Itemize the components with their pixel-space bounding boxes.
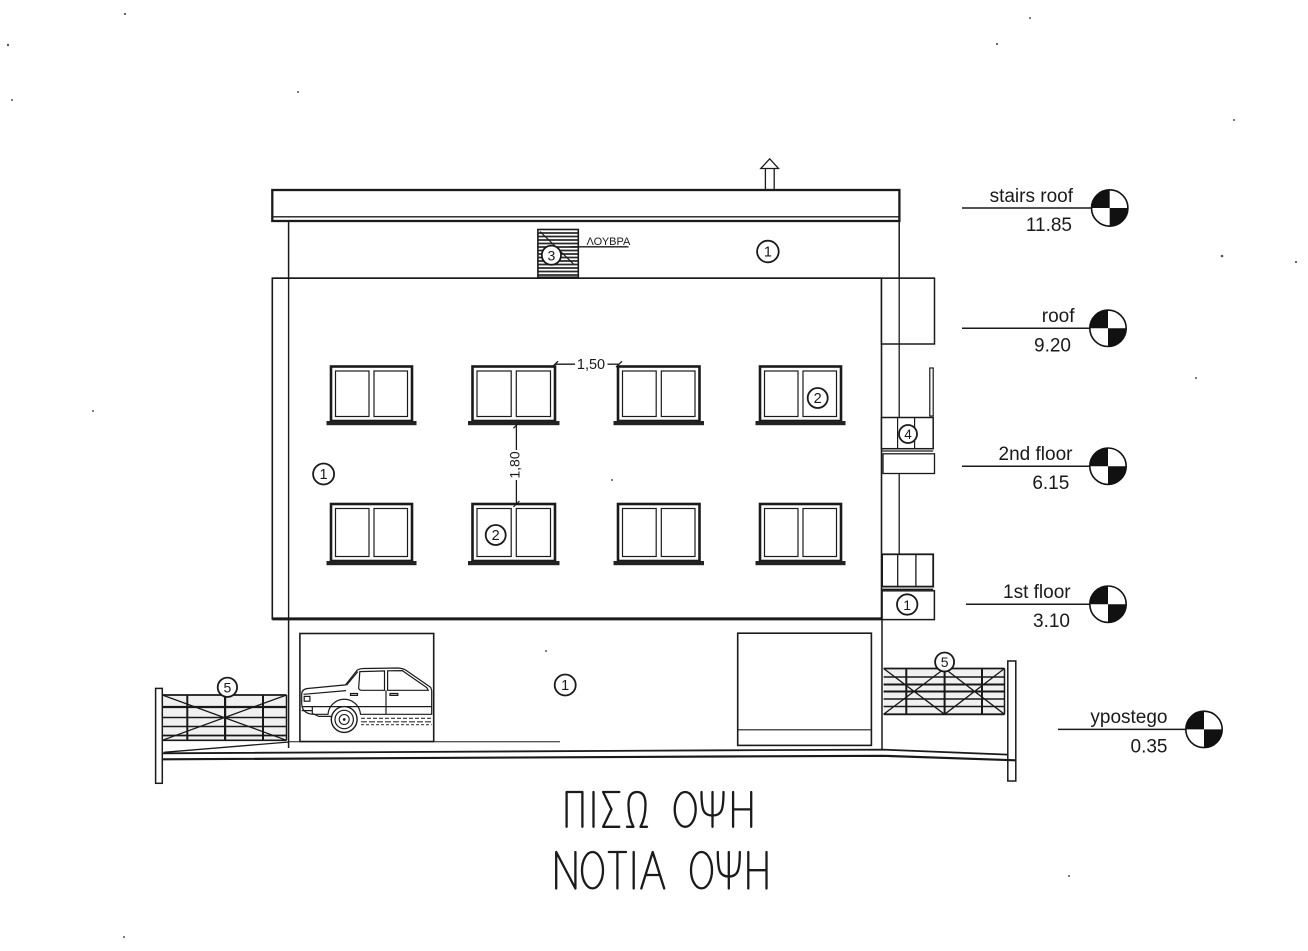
svg-text:roof: roof xyxy=(1042,306,1075,327)
svg-text:0.35: 0.35 xyxy=(1131,736,1168,757)
svg-text:5: 5 xyxy=(224,679,232,695)
svg-text:11.85: 11.85 xyxy=(1026,215,1072,236)
svg-text:9.20: 9.20 xyxy=(1034,335,1071,356)
svg-text:1: 1 xyxy=(764,245,772,261)
svg-text:1: 1 xyxy=(561,678,569,694)
svg-text:5: 5 xyxy=(941,654,949,670)
svg-text:1,50: 1,50 xyxy=(577,357,605,373)
svg-text:4: 4 xyxy=(904,427,912,442)
svg-text:6.15: 6.15 xyxy=(1032,473,1069,494)
svg-text:1st floor: 1st floor xyxy=(1003,582,1071,603)
svg-text:2: 2 xyxy=(492,528,500,544)
svg-text:3: 3 xyxy=(548,248,556,264)
svg-text:3.10: 3.10 xyxy=(1033,611,1070,632)
svg-text:1: 1 xyxy=(903,597,911,613)
svg-text:1,80: 1,80 xyxy=(507,451,523,478)
svg-text:stairs roof: stairs roof xyxy=(990,186,1074,207)
svg-text:2: 2 xyxy=(814,391,822,407)
svg-text:ΛΟΥΒΡΑ: ΛΟΥΒΡΑ xyxy=(587,236,632,248)
svg-text:ypostego: ypostego xyxy=(1090,707,1167,728)
svg-text:1: 1 xyxy=(320,467,328,483)
svg-text:2nd floor: 2nd floor xyxy=(999,444,1074,465)
